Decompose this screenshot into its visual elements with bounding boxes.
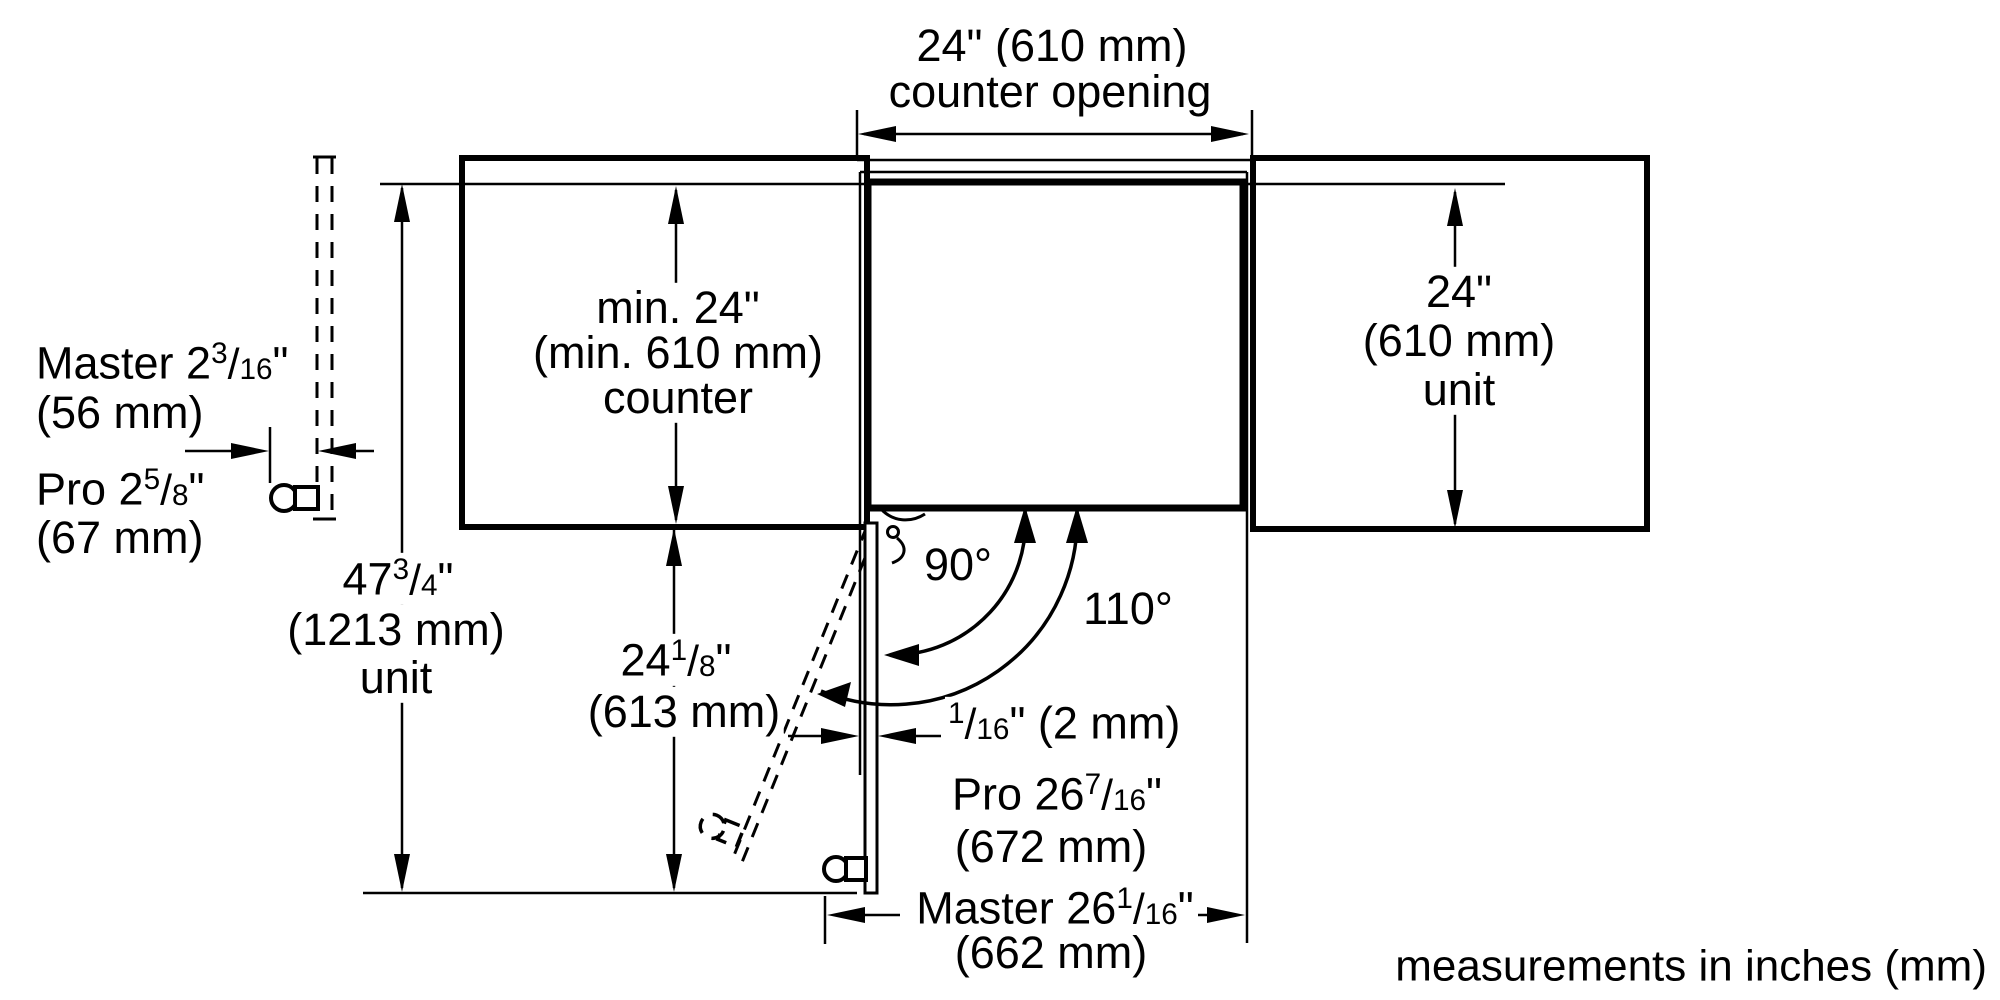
- angle-90-label: 90°: [921, 540, 995, 590]
- dim-unit-depth-right-label: unit: [1420, 365, 1499, 415]
- appliance-unit: [868, 182, 1243, 508]
- dim-counter-depth-mm: (min. 610 mm): [530, 328, 826, 378]
- arrowhead-right: [1211, 126, 1249, 142]
- door-handle-110-icon: [697, 811, 728, 842]
- arrowhead-up: [1447, 188, 1463, 226]
- dim-pro-door-depth-value: Pro 267/16": [949, 768, 1165, 820]
- arrowhead-down: [1447, 490, 1463, 528]
- dim-counter-opening-label: counter opening: [886, 67, 1215, 117]
- arrowhead-down: [668, 486, 684, 524]
- dim-unit-height: [394, 184, 410, 892]
- dim-pro-handle-mm: (67 mm): [33, 513, 207, 563]
- installation-diagram: 24" (610 mm) counter opening min. 24" (m…: [0, 0, 2000, 1000]
- dim-counter-front-to-door-mm: (613 mm): [585, 687, 784, 737]
- dim-counter-front-to-door-value: 241/8": [618, 634, 735, 686]
- arrowhead-up: [394, 184, 410, 222]
- angle-110-label: 110°: [1080, 584, 1176, 634]
- dim-door-gap-value: 1/16" (2 mm): [945, 697, 1183, 749]
- dim-unit-depth-right-mm: (610 mm): [1360, 316, 1559, 366]
- dim-master-handle-value: Master 23/16": [33, 337, 291, 389]
- arrowhead-up: [666, 528, 682, 566]
- dim-master-handle-mm: (56 mm): [33, 388, 207, 438]
- dim-unit-depth-right-value: 24": [1423, 267, 1495, 317]
- dim-counter-depth-value: min. 24": [593, 283, 763, 333]
- door-hinge: [881, 509, 925, 563]
- dim-counter-opening-value: 24" (610 mm): [913, 21, 1190, 71]
- arrowhead-down: [666, 854, 682, 892]
- arrowhead-left: [318, 443, 356, 459]
- dim-counter-depth-label: counter: [600, 373, 756, 423]
- arrowhead-right: [821, 728, 859, 744]
- arrowhead-up: [1014, 506, 1036, 543]
- dim-pro-handle-value: Pro 25/8": [33, 463, 207, 515]
- dim-unit-height-label: unit: [357, 653, 436, 703]
- arc-110: [817, 506, 1088, 707]
- dim-unit-height-value: 473/4": [340, 553, 457, 605]
- arrowhead-right: [1207, 907, 1245, 923]
- arrowhead-left: [878, 728, 916, 744]
- units-note: measurements in inches (mm): [1392, 941, 1990, 990]
- arrowhead-left: [827, 907, 865, 923]
- arrowhead-right: [231, 443, 269, 459]
- arrowhead-down: [394, 854, 410, 892]
- door-open-90: [824, 523, 877, 893]
- arrowhead-up: [668, 186, 684, 224]
- dim-pro-door-depth-mm: (672 mm): [952, 822, 1151, 872]
- dim-handle-projection: [185, 427, 374, 483]
- arrowhead-up: [1066, 506, 1088, 543]
- arrowhead-down-left: [817, 682, 851, 707]
- dim-master-door-depth-mm: (662 mm): [952, 928, 1151, 978]
- arrowhead-left: [858, 126, 896, 142]
- arrowhead-left: [884, 644, 919, 666]
- dim-unit-height-mm: (1213 mm): [284, 605, 508, 655]
